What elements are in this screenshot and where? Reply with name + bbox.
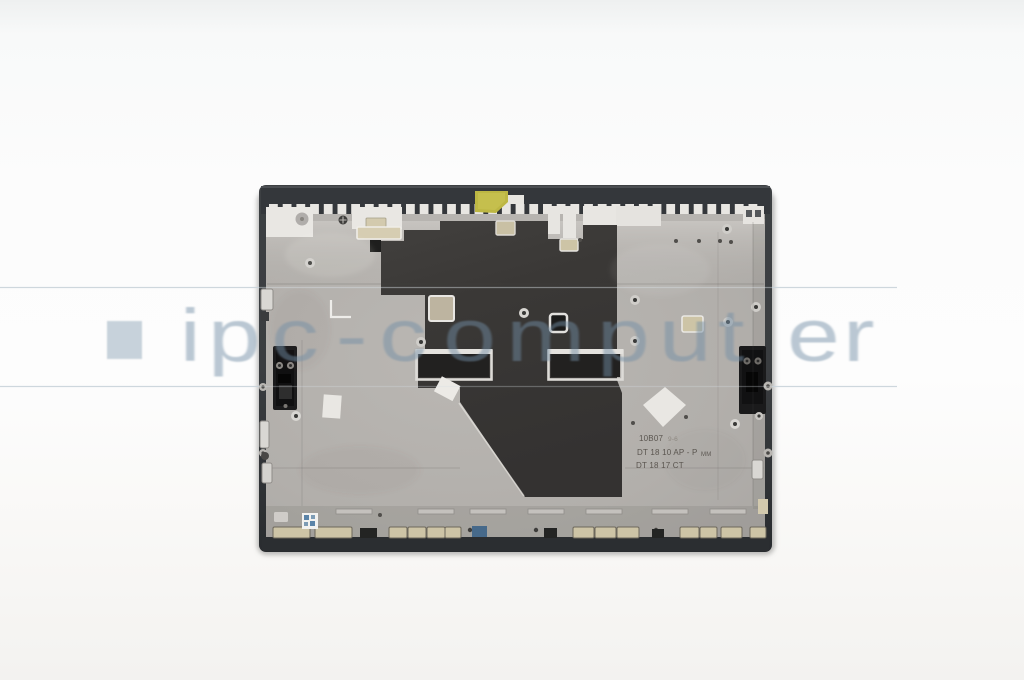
svg-text:DT 18 10 AP - P: DT 18 10 AP - P (637, 448, 698, 457)
svg-text:9-6: 9-6 (668, 436, 678, 443)
svg-text:MM: MM (701, 452, 711, 458)
svg-text:DT 18 17 CT: DT 18 17 CT (636, 461, 684, 470)
svg-text:10B07: 10B07 (639, 434, 663, 443)
